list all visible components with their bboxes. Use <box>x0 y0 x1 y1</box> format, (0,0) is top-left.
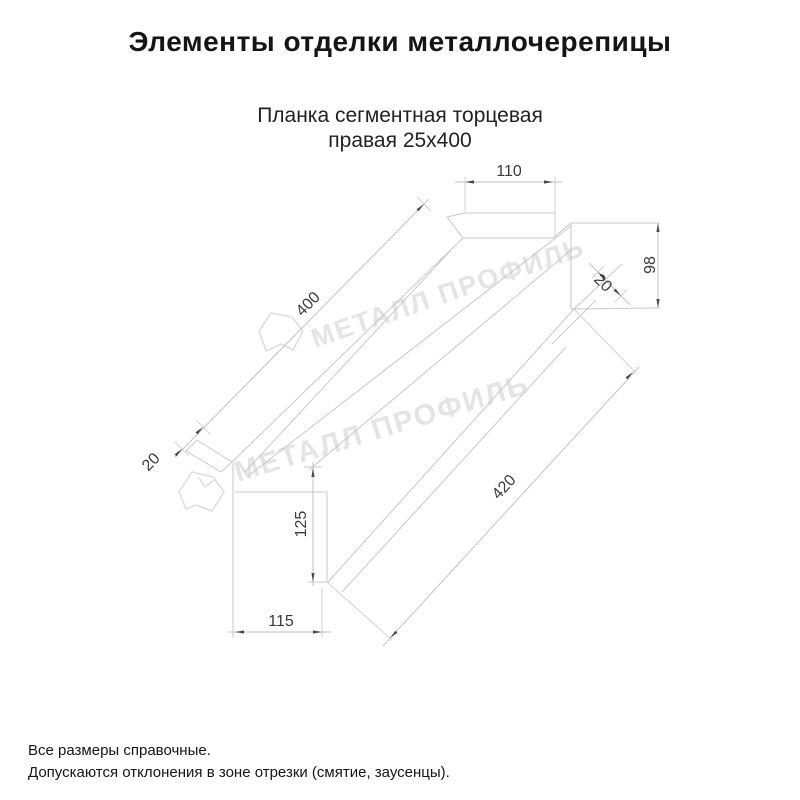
watermark-text: МЕТАЛЛ ПРОФИЛЬ <box>231 368 534 488</box>
dim-top-length: 400 <box>293 289 324 320</box>
dimension-values: 110 98 20 400 20 125 420 115 <box>139 163 659 630</box>
top-flange-edges <box>447 213 571 238</box>
dim-bottom-length: 420 <box>489 472 520 503</box>
dim-end-height: 98 <box>642 256 659 274</box>
drawing-page: Элементы отделки металлочерепицы Планка … <box>0 0 800 800</box>
dim-left-end-height: 125 <box>293 511 310 538</box>
dim-left-end-width: 115 <box>268 613 294 630</box>
footer-notes: Все размеры справочные. Допускаются откл… <box>28 740 450 784</box>
dim-top-flange-width: 110 <box>496 163 522 180</box>
dim-end-hem: 20 <box>590 271 615 296</box>
footer-note-1: Все размеры справочные. <box>28 740 450 762</box>
dim-left-hem: 20 <box>139 450 164 475</box>
technical-drawing: МЕТАЛЛ ПРОФИЛЬ МЕТАЛЛ ПРОФИЛЬ 110 98 20 … <box>0 0 800 800</box>
footer-note-2: Допускаются отклонения в зоне отрезки (с… <box>28 762 450 784</box>
metall-profil-logo <box>259 313 303 351</box>
metall-profil-logo <box>179 472 224 511</box>
watermark-text: МЕТАЛЛ ПРОФИЛЬ <box>307 232 588 354</box>
